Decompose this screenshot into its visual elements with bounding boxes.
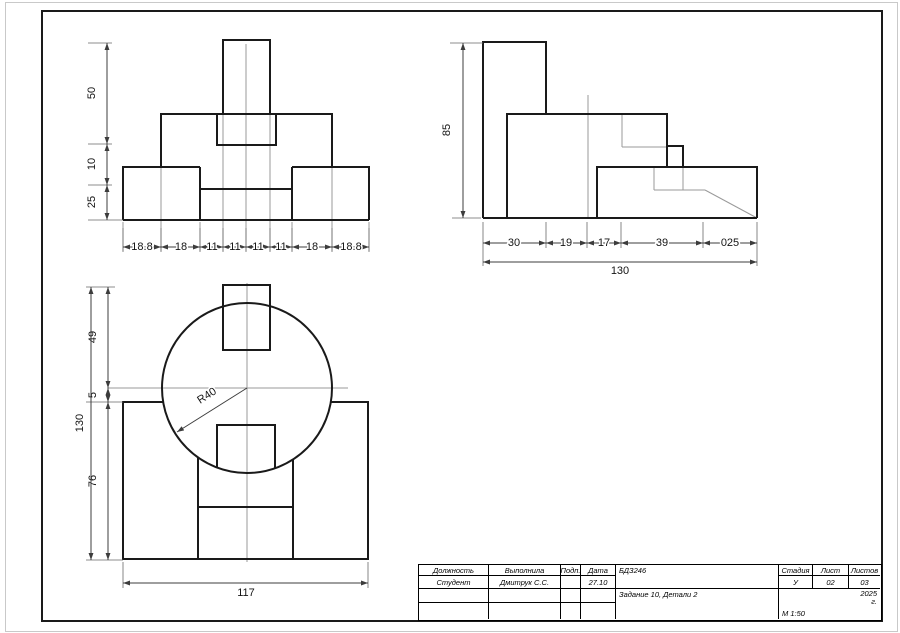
front-dim-label: 11 — [275, 241, 286, 253]
top-left-ext — [86, 287, 123, 560]
top-dim-label: 49 — [87, 331, 99, 343]
header-sheets: Листов — [849, 565, 880, 576]
top-bottom-ext — [123, 562, 368, 588]
drawing-sheet: 50 10 25 18.8 18 11 11 11 11 18 18.8 — [0, 0, 900, 633]
side-right-block — [597, 167, 757, 218]
header-date: Дата — [581, 565, 616, 576]
side-left-ext — [450, 43, 483, 218]
top-view: R40 49 5 76 130 117 — [74, 283, 368, 599]
side-column — [483, 42, 546, 218]
year-suffix: г. — [871, 597, 877, 606]
side-bottom-ext — [483, 222, 757, 266]
value-sheets: 03 — [849, 576, 880, 589]
front-dim-label: 18 — [175, 241, 187, 253]
value-stage: У — [779, 576, 813, 589]
side-dim-label: 17 — [598, 237, 610, 249]
side-dim-label: 025 — [721, 237, 739, 249]
doc-code-cell: БДЗ246 — [616, 565, 779, 589]
empty-cell — [419, 603, 489, 619]
empty-cell — [581, 589, 616, 603]
header-position: Должность — [419, 565, 489, 576]
side-dim-label: 130 — [611, 265, 629, 277]
year-scale-cell: 2025 г. М 1:50 — [779, 589, 880, 619]
year-label: 2025 г. — [860, 590, 877, 606]
value-sheet: 02 — [813, 576, 849, 589]
empty-cell — [561, 589, 581, 603]
doc-title-cell: Задание 10, Детали 2 — [616, 589, 779, 619]
side-dim-label: 85 — [441, 124, 453, 136]
empty-cell — [561, 603, 581, 619]
header-stage: Стадия — [779, 565, 813, 576]
side-dim-label: 19 — [560, 237, 572, 249]
side-view: 85 30 19 17 39 025 130 — [441, 42, 757, 277]
top-dim-label: 5 — [87, 392, 99, 398]
side-notch — [667, 146, 683, 167]
title-block: Должность Выполнила Подп. Дата БДЗ246 Ст… — [418, 564, 882, 621]
front-dim-label: 10 — [86, 158, 98, 170]
top-center-lines — [108, 283, 348, 562]
top-dim-label: 76 — [87, 475, 99, 487]
front-left-ext — [88, 43, 123, 220]
empty-cell — [489, 603, 561, 619]
front-dim-label: 50 — [86, 87, 98, 99]
front-dim-label: 11 — [206, 241, 217, 253]
scale-label: М 1:50 — [782, 609, 805, 618]
front-dim-label: 18.8 — [340, 241, 361, 253]
side-dim-label: 39 — [656, 237, 668, 249]
top-dim-label: 117 — [237, 587, 255, 599]
header-executed-by: Выполнила — [489, 565, 561, 576]
top-inner-boss — [217, 425, 275, 468]
side-dim-label: 30 — [508, 237, 520, 249]
value-signature-empty — [561, 576, 581, 589]
value-executed-by: Дмитрук С.С. — [489, 576, 561, 589]
top-radius-label: R40 — [195, 385, 218, 406]
value-date: 27.10 — [581, 576, 616, 589]
header-signature: Подп. — [561, 565, 581, 576]
front-right-block — [292, 167, 369, 220]
front-dim-label: 18 — [306, 241, 318, 253]
empty-cell — [419, 589, 489, 603]
front-view: 50 10 25 18.8 18 11 11 11 11 18 18.8 — [86, 40, 369, 253]
front-dim-label: 25 — [86, 196, 98, 208]
empty-cell — [489, 589, 561, 603]
value-position: Студент — [419, 576, 489, 589]
header-sheet: Лист — [813, 565, 849, 576]
front-bottom-ext — [123, 228, 369, 252]
front-dim-label: 11 — [252, 241, 263, 253]
top-dim-label: 130 — [74, 414, 86, 432]
empty-cell — [581, 603, 616, 619]
front-dim-label: 11 — [229, 241, 240, 253]
front-dim-label: 18.8 — [131, 241, 152, 253]
drawing-canvas: 50 10 25 18.8 18 11 11 11 11 18 18.8 — [0, 0, 900, 633]
sheet-frame — [42, 11, 882, 621]
